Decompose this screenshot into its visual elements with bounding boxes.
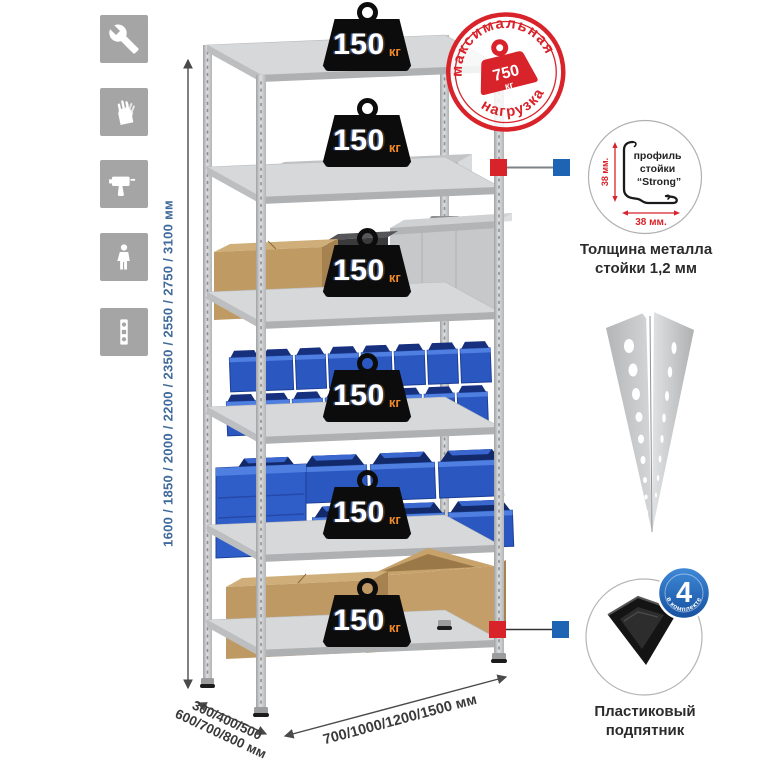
- height-dimensions-label: 1600 / 1850 / 2000 / 2200 / 2350 / 2550 …: [161, 74, 176, 674]
- included-badge: 4 в комплекте: [658, 567, 710, 619]
- profile-text-line1: профиль: [634, 150, 682, 162]
- shelf-load-weight-3: 150кг: [322, 228, 412, 297]
- svg-text:профиль стойки “St: профиль стойки “Strong”: [634, 150, 685, 188]
- shelf-load-weight-2: 150кг: [322, 98, 412, 167]
- profile-dim-horizontal: 38 мм.: [635, 217, 667, 228]
- profile-caption: Толщина металла стойки 1,2 мм: [561, 240, 731, 278]
- foot-caption: Пластиковый подпятник: [560, 702, 730, 740]
- shelf-load-weight-1: 150кг: [322, 2, 412, 71]
- shelf-load-weight-6: 150кг: [322, 578, 412, 647]
- profile-text-line3: “Strong”: [637, 176, 681, 188]
- product-infographic: 1600 / 1850 / 2000 / 2200 / 2350 / 2550 …: [0, 0, 765, 765]
- shelf-load-weight-4: 150кг: [322, 353, 412, 422]
- profile-callout-connector: [490, 159, 570, 176]
- post-profile-detail: 38 мм. 38 мм. профиль стойки “Strong”: [586, 118, 704, 236]
- angle-post-image: [596, 304, 702, 536]
- plastic-foot-detail: 4 в комплекте: [580, 565, 720, 705]
- badge-count: 4: [676, 577, 692, 609]
- foot-callout-connector: [489, 621, 569, 638]
- profile-dim-vertical: 38 мм.: [600, 158, 610, 186]
- shelf-load-weight-5: 150кг: [322, 470, 412, 539]
- profile-text-line2: стойки: [640, 163, 675, 175]
